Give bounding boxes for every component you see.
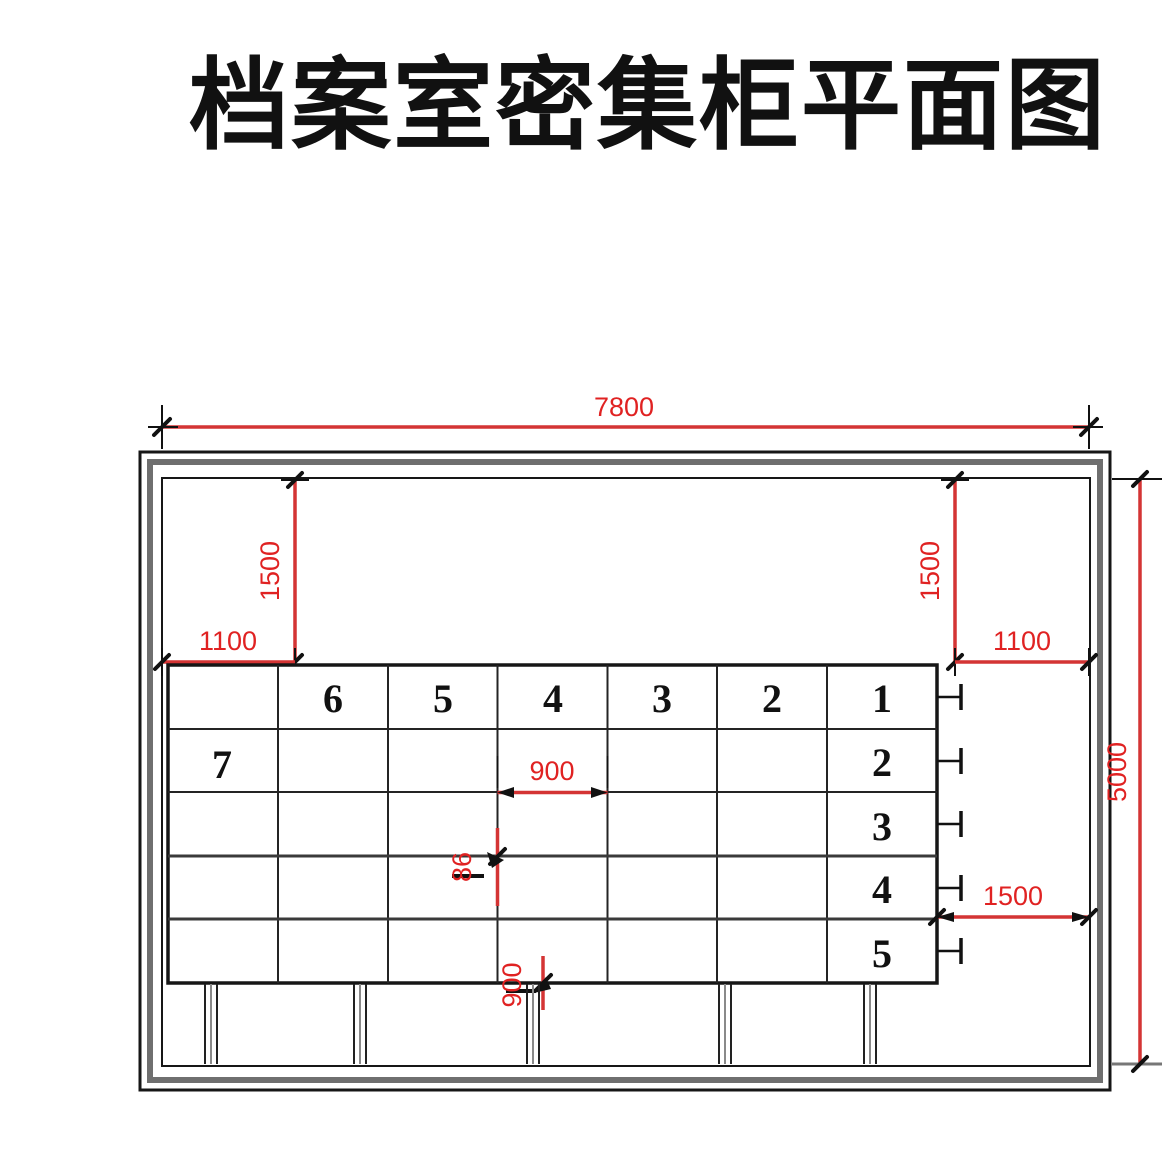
drawing-title: 档案室密集柜平面图 <box>189 51 1107 162</box>
cabinet-label-2: 2 <box>762 676 782 721</box>
cabinet-label-6: 6 <box>323 676 343 721</box>
dim-track-gap-label: 86 <box>447 852 477 882</box>
cabinet-label-7: 7 <box>212 742 232 787</box>
dim-side-offset-left-label: 1100 <box>199 626 257 656</box>
dim-right-aisle-label: 1500 <box>983 881 1043 911</box>
cabinet-row-label-2: 2 <box>872 740 892 785</box>
dim-room-width-label: 7800 <box>594 392 654 422</box>
cabinet-row-label-3: 3 <box>872 804 892 849</box>
dim-room-depth-label: 5000 <box>1102 742 1132 802</box>
floor-plan-drawing: 档案室密集柜平面图 7800 1500 1500 <box>0 0 1176 1176</box>
dim-section-width-label: 900 <box>529 756 574 786</box>
dim-side-offset-right-label: 1100 <box>993 626 1051 656</box>
dim-front-aisle-left-label: 1500 <box>255 541 285 601</box>
cabinet-label-3: 3 <box>652 676 672 721</box>
floor-plan-page: 档案室密集柜平面图 7800 1500 1500 <box>0 0 1176 1176</box>
cabinet-label-4: 4 <box>543 676 563 721</box>
cabinet-label-5: 5 <box>433 676 453 721</box>
dim-rail-extension: 900 <box>497 956 551 1010</box>
dim-room-width: 7800 <box>148 392 1103 449</box>
cabinet-row-label-5: 5 <box>872 931 892 976</box>
cabinet-label-1: 1 <box>872 676 892 721</box>
dim-rail-extension-label: 900 <box>497 962 527 1007</box>
cabinet-row-label-4: 4 <box>872 867 892 912</box>
dim-front-aisle-right-label: 1500 <box>915 541 945 601</box>
